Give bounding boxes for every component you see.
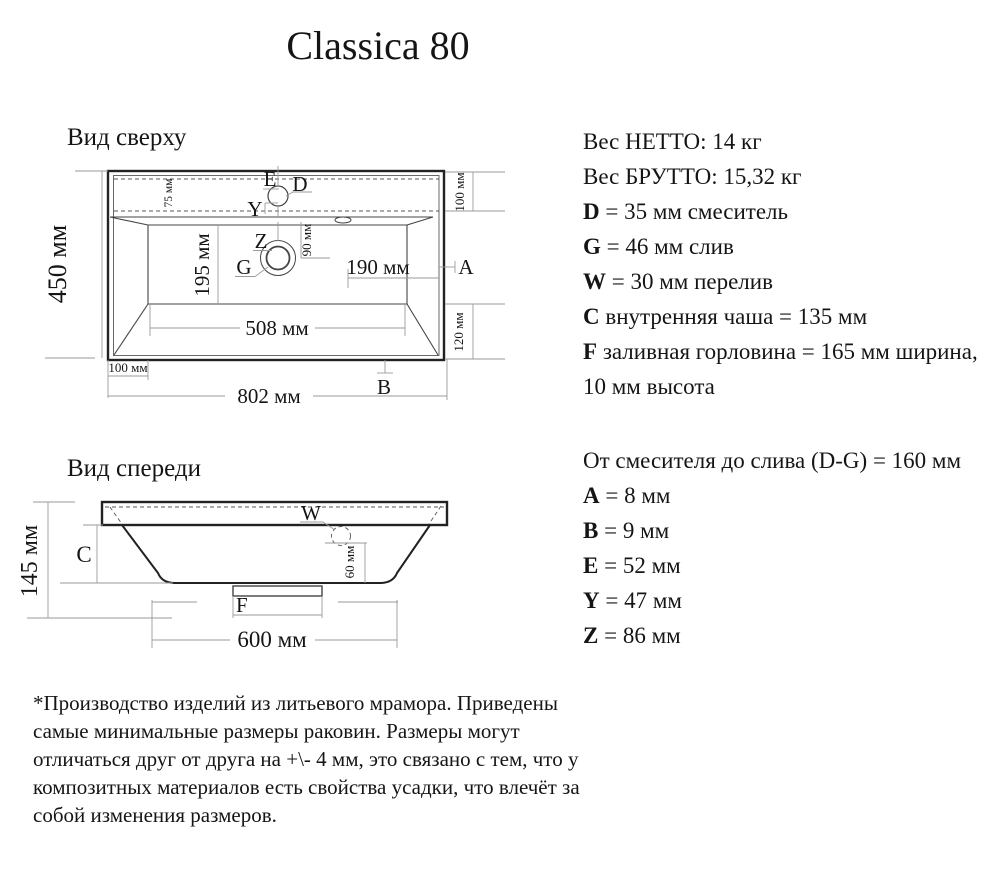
label-W: W — [301, 501, 321, 525]
spec-line: C внутренняя чаша = 135 мм — [583, 299, 978, 334]
label-B: B — [377, 375, 391, 399]
top-view-label: Вид сверху — [67, 124, 186, 152]
spec-line: Вес НЕТТО: 14 кг — [583, 124, 978, 159]
overflow-hole-top — [335, 217, 351, 223]
label-C: C — [76, 542, 91, 567]
label-D: D — [292, 172, 307, 196]
dim-195-label: 195 мм — [190, 233, 214, 296]
label-Z: Z — [255, 229, 268, 253]
dim-120-label: 120 мм — [451, 312, 466, 351]
dim-60-label: 60 мм — [342, 546, 357, 579]
footnote-line: отличаться друг от друга на +\- 4 мм, эт… — [33, 745, 580, 773]
label-A: A — [458, 255, 474, 279]
specs-block-weights: Вес НЕТТО: 14 кг Вес БРУТТО: 15,32 кг D … — [583, 124, 978, 404]
spec-line: 10 мм высота — [583, 369, 978, 404]
bowl-section — [122, 525, 430, 583]
dim-100-top-right-label: 100 мм — [452, 172, 467, 211]
dim-600-label: 600 мм — [237, 627, 307, 652]
footnote: *Производство изделий из литьевого мрамо… — [33, 689, 580, 829]
spec-line: Вес БРУТТО: 15,32 кг — [583, 159, 978, 194]
footnote-line: композитных материалов есть свойства уса… — [33, 773, 580, 801]
spec-sheet-page: { "title": "Classica 80", "top_view": { … — [0, 0, 999, 871]
footnote-line: самые минимальные размеры раковин. Разме… — [33, 717, 580, 745]
spec-line: Z = 86 мм — [583, 618, 961, 653]
footnote-line: собой изменения размеров. — [33, 801, 580, 829]
front-view-drawing: W 60 мм C 145 мм F 600 мм — [25, 490, 475, 660]
spec-line: B = 9 мм — [583, 513, 961, 548]
specs-block-letters: От смесителя до слива (D-G) = 160 мм A =… — [583, 443, 961, 653]
dim-450-label: 450 мм — [43, 225, 72, 303]
spec-line: От смесителя до слива (D-G) = 160 мм — [583, 443, 961, 478]
dim-802-label: 802 мм — [237, 384, 300, 408]
label-G: G — [236, 255, 251, 279]
label-Y: Y — [247, 197, 262, 221]
dim-508-label: 508 мм — [245, 316, 308, 340]
spec-line: Y = 47 мм — [583, 583, 961, 618]
spec-line: A = 8 мм — [583, 478, 961, 513]
spec-line: E = 52 мм — [583, 548, 961, 583]
dim-145-label: 145 мм — [17, 525, 43, 597]
dim-90-label: 90 мм — [299, 224, 314, 257]
dim-100-bottom-label: 100 мм — [108, 360, 147, 375]
label-E: E — [264, 167, 277, 191]
spec-line: G = 46 мм слив — [583, 229, 978, 264]
sink-front-outline — [102, 502, 447, 596]
spec-line: D = 35 мм смеситель — [583, 194, 978, 229]
page-title: Classica 80 — [286, 22, 469, 69]
top-view-drawing: E D Y Z G A B 90 мм 195 мм 190 мм 508 мм… — [30, 155, 510, 415]
spec-line: F заливная горловина = 165 мм ширина, — [583, 334, 978, 369]
dim-190-label: 190 мм — [346, 255, 409, 279]
drain-inner-circle — [267, 247, 290, 270]
dim-75-label: 75 мм — [163, 178, 175, 208]
spec-line: W = 30 мм перелив — [583, 264, 978, 299]
front-view-label: Вид спереди — [67, 455, 201, 483]
footnote-line: *Производство изделий из литьевого мрамо… — [33, 689, 580, 717]
label-F: F — [236, 593, 248, 617]
rim-section — [102, 502, 447, 525]
